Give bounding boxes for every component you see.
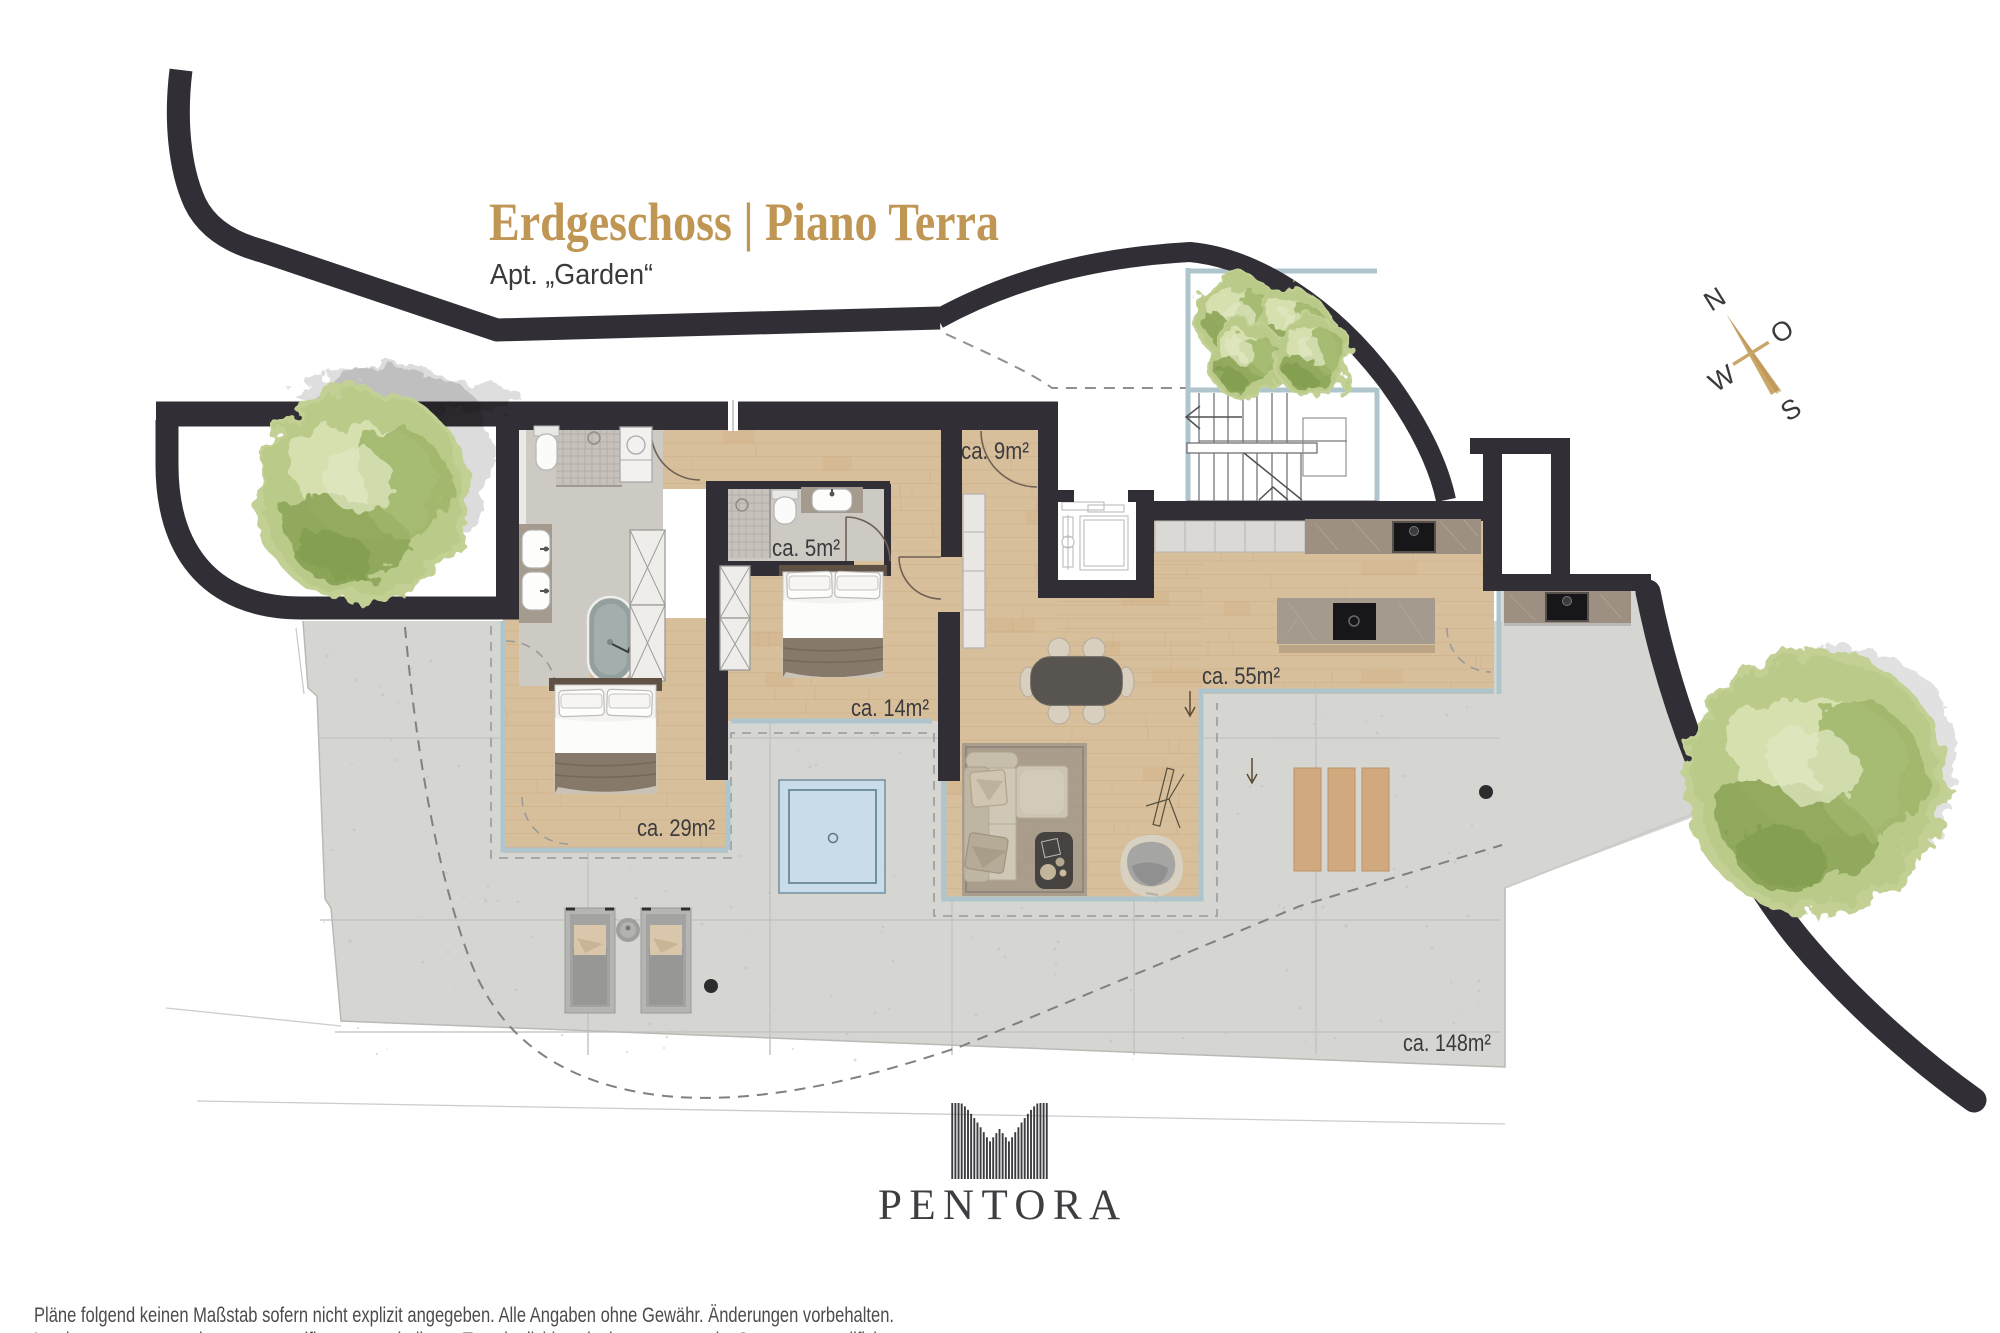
svg-text:ca. 14m²: ca. 14m² — [851, 695, 929, 722]
svg-text:Pläne folgend keinen Maßstab s: Pläne folgend keinen Maßstab sofern nich… — [34, 1303, 894, 1327]
svg-text:ca. 9m²: ca. 9m² — [961, 438, 1029, 465]
svg-text:ca. 148m²: ca. 148m² — [1403, 1030, 1491, 1057]
svg-text:ca. 55m²: ca. 55m² — [1202, 663, 1280, 690]
svg-text:Le piante seguono scala se non: Le piante seguono scala se non specifica… — [34, 1328, 896, 1333]
svg-text:ca. 29m²: ca. 29m² — [637, 815, 715, 842]
svg-text:Apt. „Garden“: Apt. „Garden“ — [490, 259, 653, 291]
svg-text:Erdgeschoss | Piano Terra: Erdgeschoss | Piano Terra — [489, 192, 999, 252]
svg-text:ca. 5m²: ca. 5m² — [772, 535, 840, 562]
